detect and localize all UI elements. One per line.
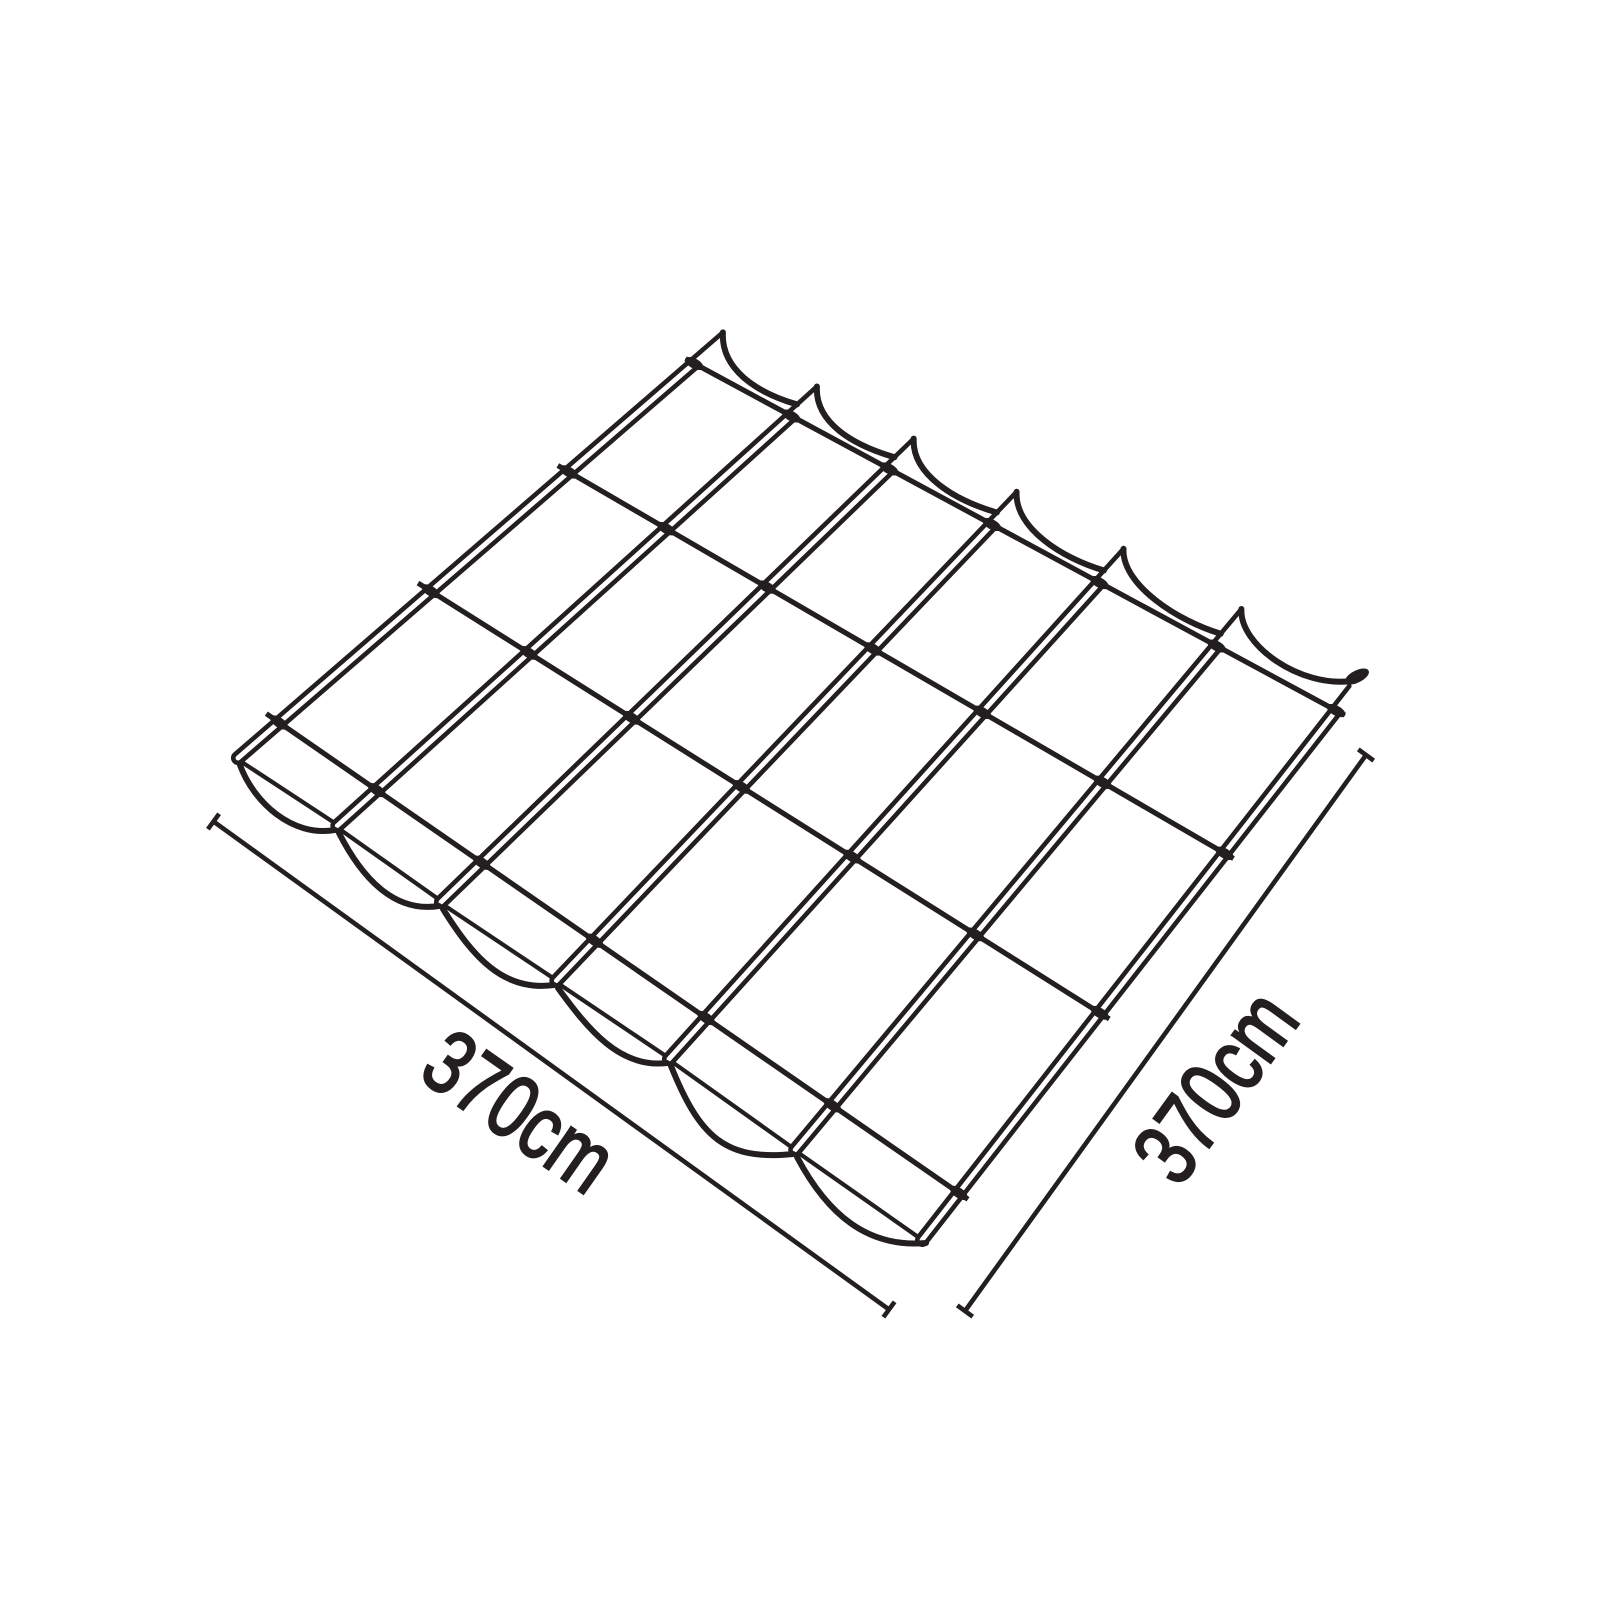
svg-text:370cm: 370cm: [1114, 973, 1318, 1201]
